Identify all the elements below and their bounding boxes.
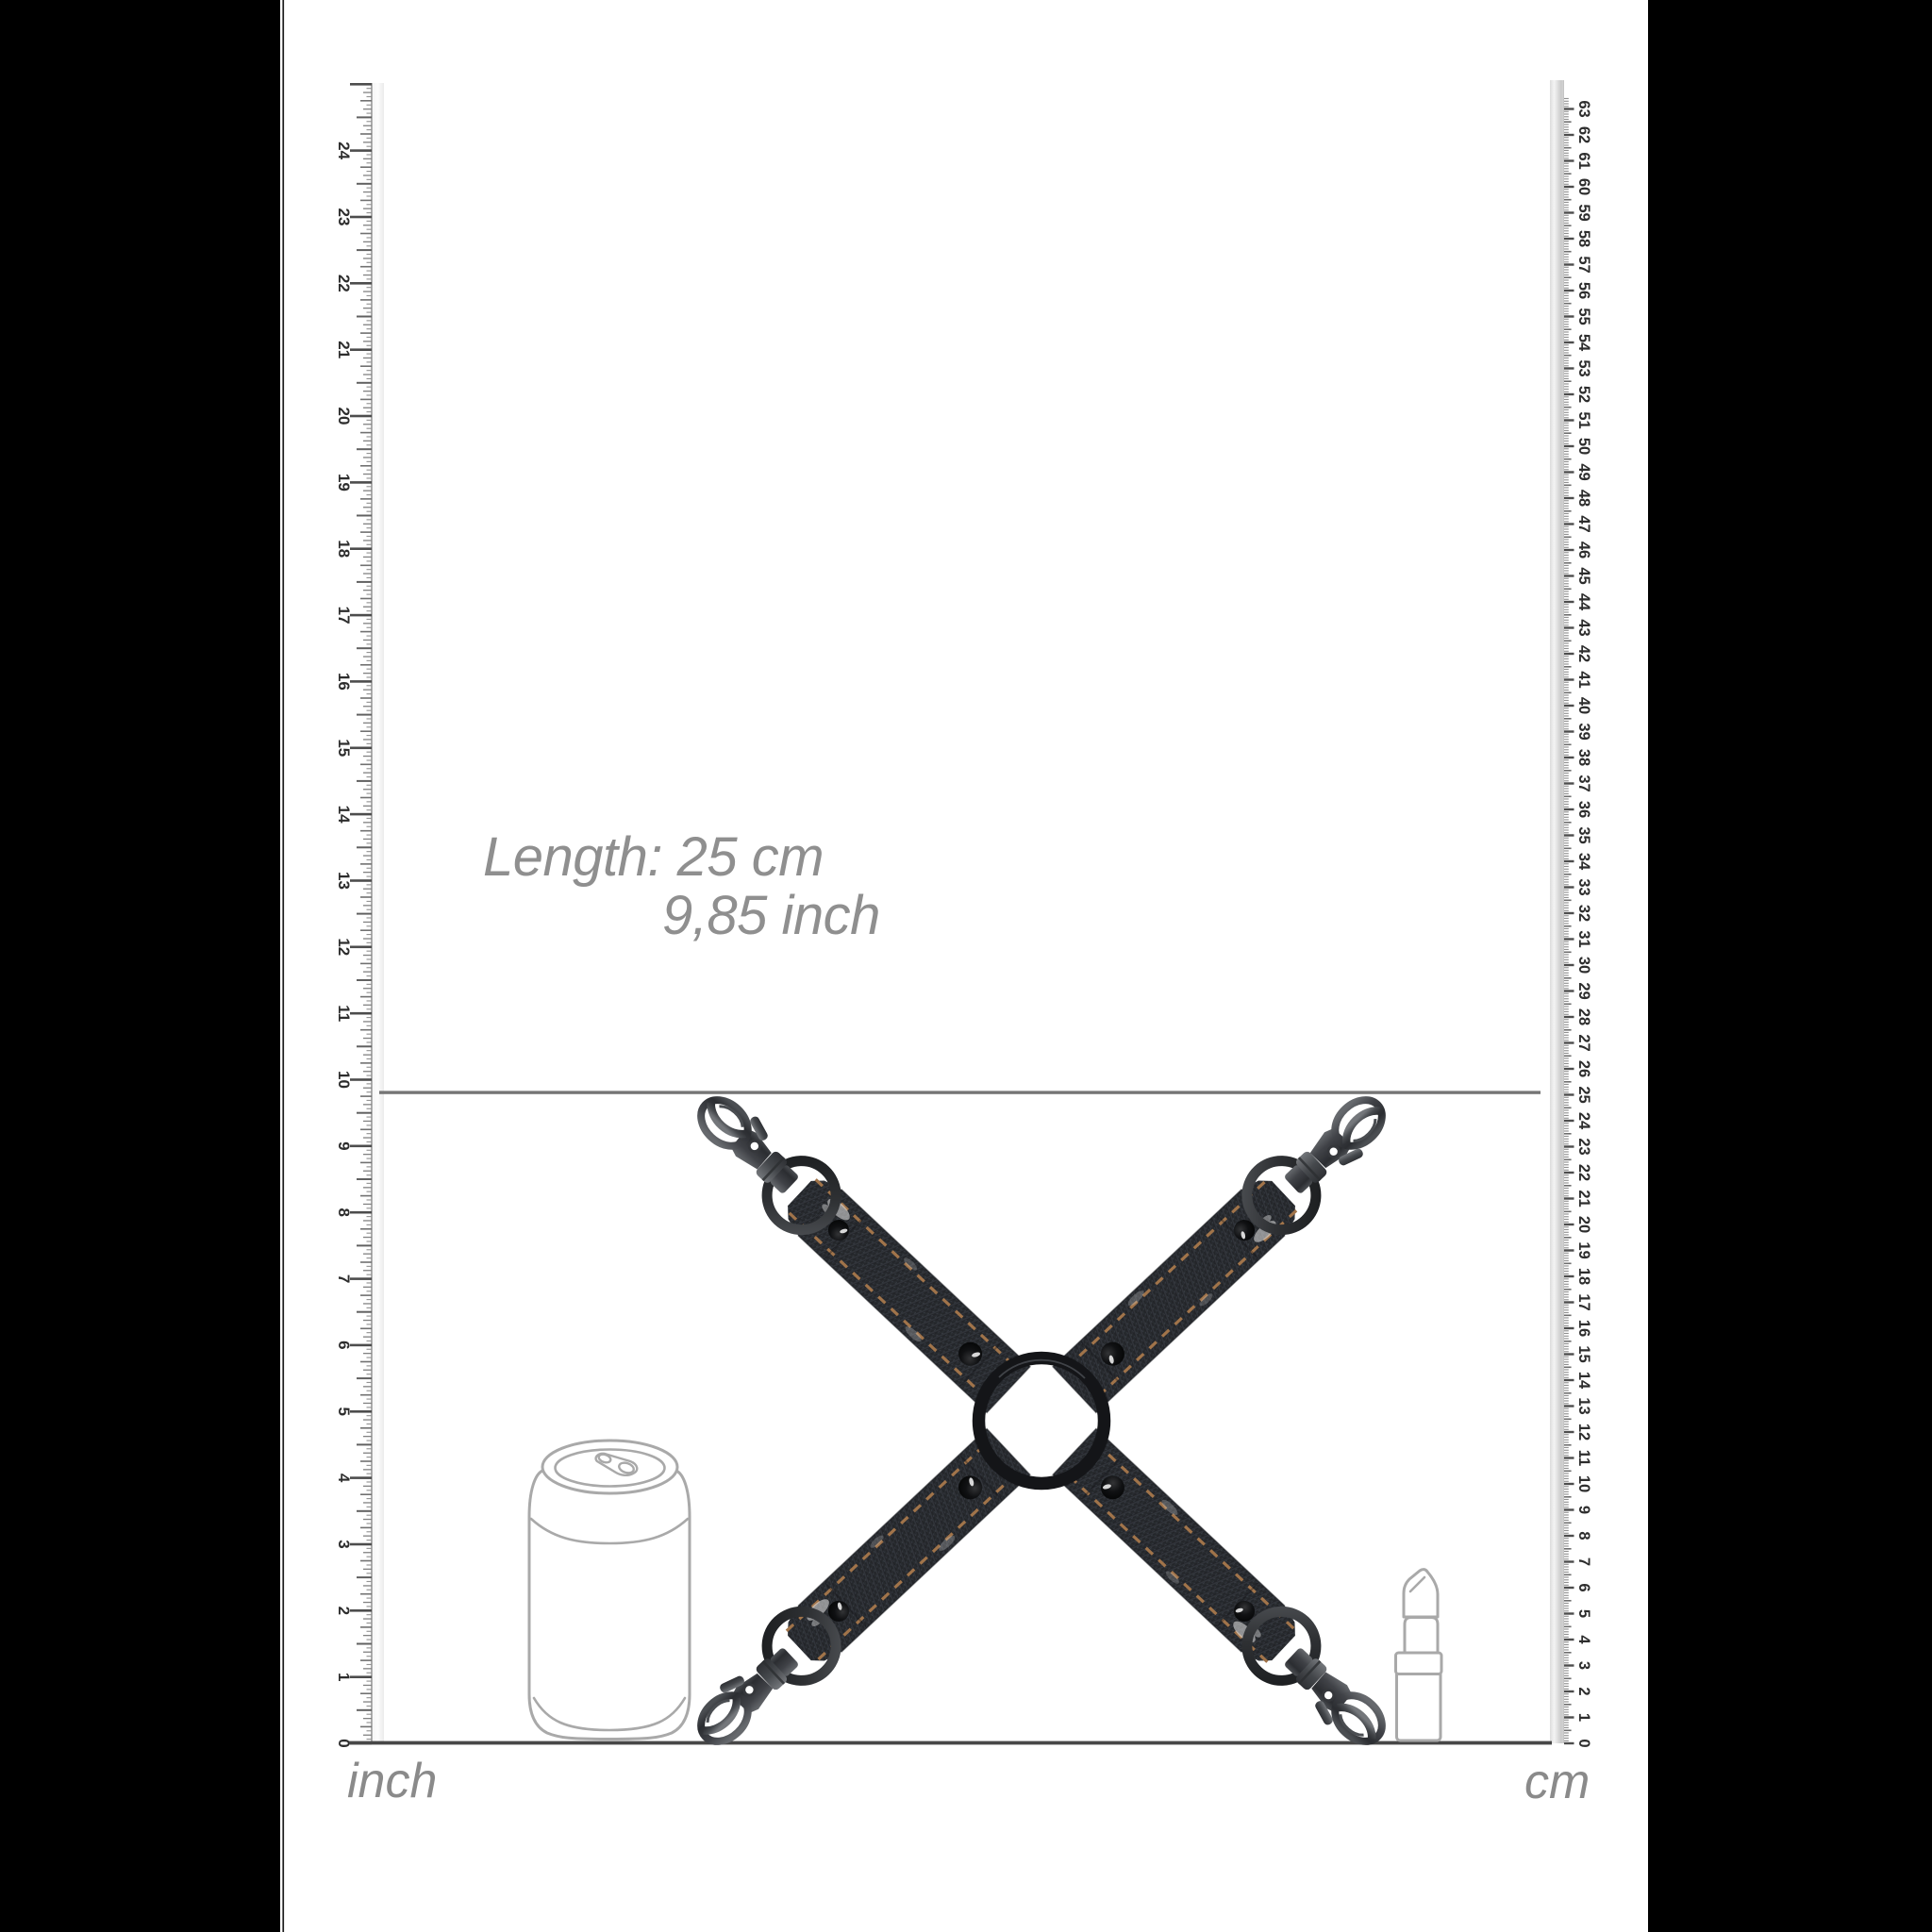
svg-text:52: 52 [1575,386,1592,403]
svg-text:10: 10 [335,1071,353,1089]
svg-text:12: 12 [1575,1424,1592,1441]
svg-text:60: 60 [1575,178,1592,195]
svg-text:47: 47 [1575,515,1592,532]
svg-text:7: 7 [1575,1557,1592,1566]
svg-text:17: 17 [335,607,353,625]
svg-text:15: 15 [1575,1345,1592,1362]
svg-text:8: 8 [335,1207,353,1216]
svg-text:Length: 25 cm: Length: 25 cm [483,826,824,888]
svg-text:48: 48 [1575,490,1592,507]
svg-text:24: 24 [1575,1112,1592,1130]
svg-text:51: 51 [1575,411,1592,428]
svg-text:46: 46 [1575,541,1592,558]
svg-text:3: 3 [1575,1661,1592,1670]
svg-text:20: 20 [335,408,353,425]
svg-text:13: 13 [335,872,353,890]
svg-text:12: 12 [335,938,353,956]
svg-text:11: 11 [1575,1450,1592,1466]
svg-text:22: 22 [1575,1164,1592,1181]
svg-text:49: 49 [1575,463,1592,480]
svg-text:62: 62 [1575,126,1592,143]
svg-text:55: 55 [1575,308,1592,325]
svg-text:45: 45 [1575,567,1592,584]
svg-text:57: 57 [1575,256,1592,273]
svg-text:13: 13 [1575,1397,1592,1414]
svg-text:2: 2 [1575,1687,1592,1695]
svg-text:28: 28 [1575,1008,1592,1025]
svg-text:21: 21 [1575,1190,1592,1207]
svg-text:3: 3 [335,1540,353,1548]
svg-text:4: 4 [1575,1635,1592,1644]
svg-text:9: 9 [335,1141,353,1150]
svg-text:61: 61 [1575,152,1592,169]
svg-text:7: 7 [335,1274,353,1283]
svg-text:44: 44 [1575,593,1592,611]
svg-text:0: 0 [1575,1739,1592,1747]
svg-text:29: 29 [1575,982,1592,999]
svg-text:50: 50 [1575,438,1592,455]
svg-text:37: 37 [1575,774,1592,791]
svg-text:24: 24 [335,142,353,159]
svg-text:21: 21 [335,341,353,358]
svg-text:9: 9 [1575,1506,1592,1514]
svg-text:14: 14 [335,806,353,824]
svg-text:19: 19 [335,474,353,491]
svg-text:cm: cm [1524,1755,1590,1809]
svg-text:22: 22 [335,275,353,292]
svg-text:18: 18 [1575,1268,1592,1285]
svg-text:inch: inch [347,1754,437,1808]
svg-text:31: 31 [1575,930,1592,947]
svg-text:20: 20 [1575,1216,1592,1233]
svg-text:1: 1 [335,1673,353,1681]
svg-text:42: 42 [1575,645,1592,662]
svg-text:30: 30 [1575,957,1592,974]
svg-text:26: 26 [1575,1060,1592,1077]
svg-text:6: 6 [1575,1583,1592,1591]
svg-text:43: 43 [1575,619,1592,636]
svg-text:14: 14 [1575,1372,1592,1390]
svg-text:41: 41 [1575,671,1592,688]
svg-text:6: 6 [335,1341,353,1349]
svg-text:5: 5 [1575,1609,1592,1618]
svg-text:53: 53 [1575,359,1592,376]
svg-text:11: 11 [335,1005,353,1022]
svg-text:19: 19 [1575,1241,1592,1258]
svg-text:18: 18 [335,540,353,558]
svg-text:38: 38 [1575,749,1592,766]
svg-text:35: 35 [1575,826,1592,843]
svg-text:27: 27 [1575,1034,1592,1051]
svg-text:56: 56 [1575,282,1592,299]
svg-text:23: 23 [335,208,353,226]
svg-text:59: 59 [1575,204,1592,221]
svg-text:1: 1 [1575,1713,1592,1722]
svg-text:17: 17 [1575,1293,1592,1310]
svg-text:15: 15 [335,739,353,757]
svg-text:63: 63 [1575,100,1592,117]
svg-text:58: 58 [1575,230,1592,247]
svg-text:33: 33 [1575,878,1592,895]
svg-text:16: 16 [1575,1320,1592,1337]
svg-text:16: 16 [335,673,353,691]
svg-text:5: 5 [335,1407,353,1415]
svg-text:34: 34 [1575,853,1592,871]
svg-text:2: 2 [335,1607,353,1615]
svg-text:23: 23 [1575,1138,1592,1155]
svg-text:9,85 inch: 9,85 inch [662,885,880,946]
svg-text:25: 25 [1575,1086,1592,1103]
svg-text:39: 39 [1575,723,1592,740]
svg-text:40: 40 [1575,697,1592,714]
svg-text:32: 32 [1575,905,1592,922]
svg-text:36: 36 [1575,801,1592,818]
svg-text:10: 10 [1575,1475,1592,1492]
svg-text:4: 4 [335,1474,353,1483]
svg-text:8: 8 [1575,1531,1592,1540]
svg-text:54: 54 [1575,334,1592,352]
